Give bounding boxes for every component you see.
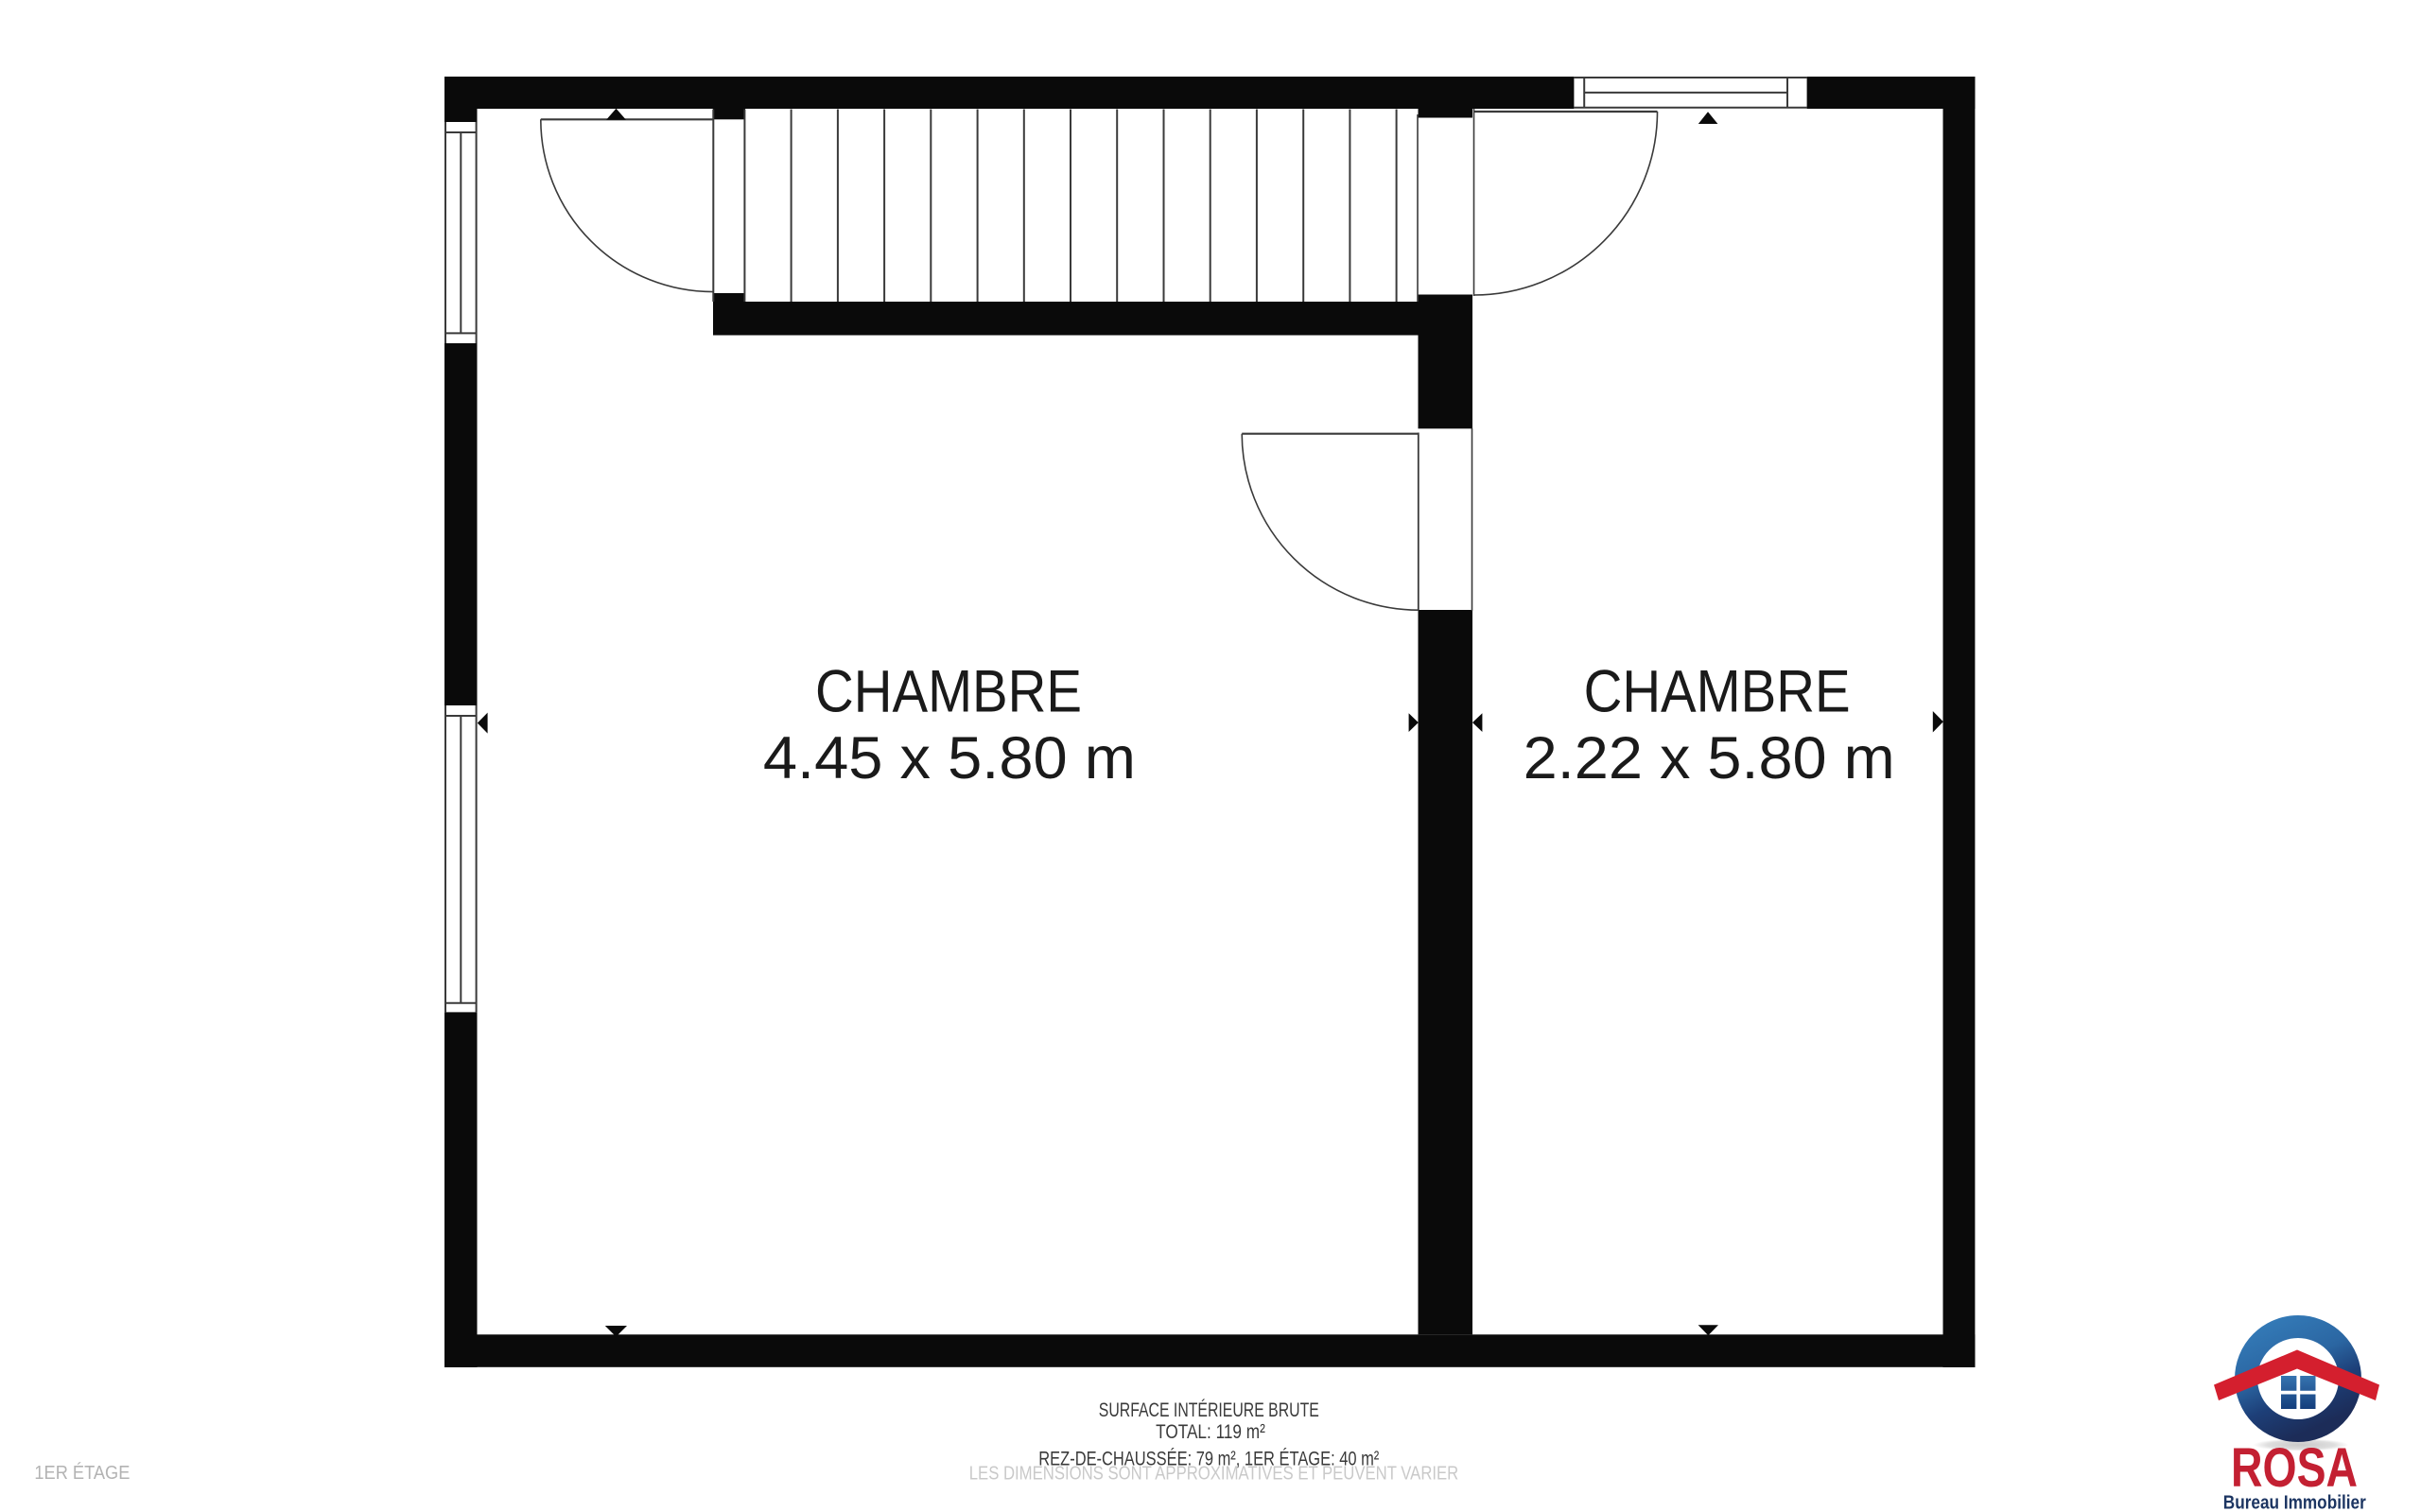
svg-text:1ER ÉTAGE: 1ER ÉTAGE (34, 1462, 130, 1484)
svg-text:SURFACE INTÉRIEURE BRUTE: SURFACE INTÉRIEURE BRUTE (1099, 1398, 1319, 1421)
svg-text:CHAMBRE: CHAMBRE (1584, 659, 1851, 725)
svg-text:CHAMBRE: CHAMBRE (815, 659, 1082, 725)
svg-text:Bureau Immobilier: Bureau Immobilier (2223, 1492, 2366, 1512)
svg-text:4.45 x 5.80 m: 4.45 x 5.80 m (763, 725, 1136, 791)
svg-text:2.22 x 5.80 m: 2.22 x 5.80 m (1524, 725, 1895, 791)
svg-text:ROSA: ROSA (2231, 1437, 2358, 1499)
svg-text:LES DIMENSIONS SONT APPROXIMAT: LES DIMENSIONS SONT APPROXIMATIVES ET PE… (969, 1464, 1459, 1485)
svg-text:TOTAL: 119 m²: TOTAL: 119 m² (1156, 1420, 1265, 1443)
